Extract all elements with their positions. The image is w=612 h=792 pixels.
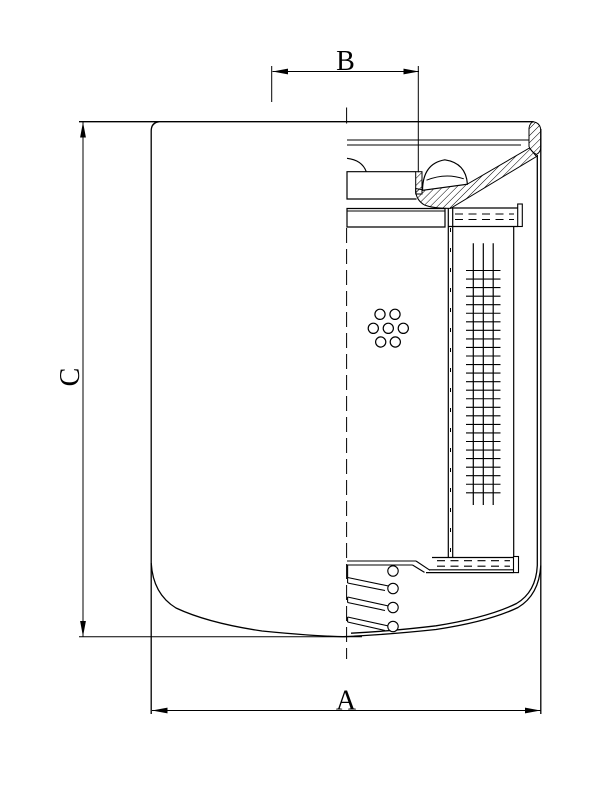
dim-b-label: B xyxy=(336,46,355,77)
dim-c-label: C xyxy=(55,368,86,387)
drawing-page: B C A xyxy=(0,0,612,792)
rolled-rim-hatched xyxy=(529,122,541,155)
paper-background xyxy=(0,0,612,792)
spring-wire-circle xyxy=(388,602,398,612)
spring-wire-circle xyxy=(388,621,398,631)
filter-cross-section-drawing: B C A xyxy=(0,0,612,792)
spring-wire-circle xyxy=(388,566,398,576)
dim-a-label: A xyxy=(336,686,357,717)
spring-wire-circle xyxy=(388,583,398,593)
